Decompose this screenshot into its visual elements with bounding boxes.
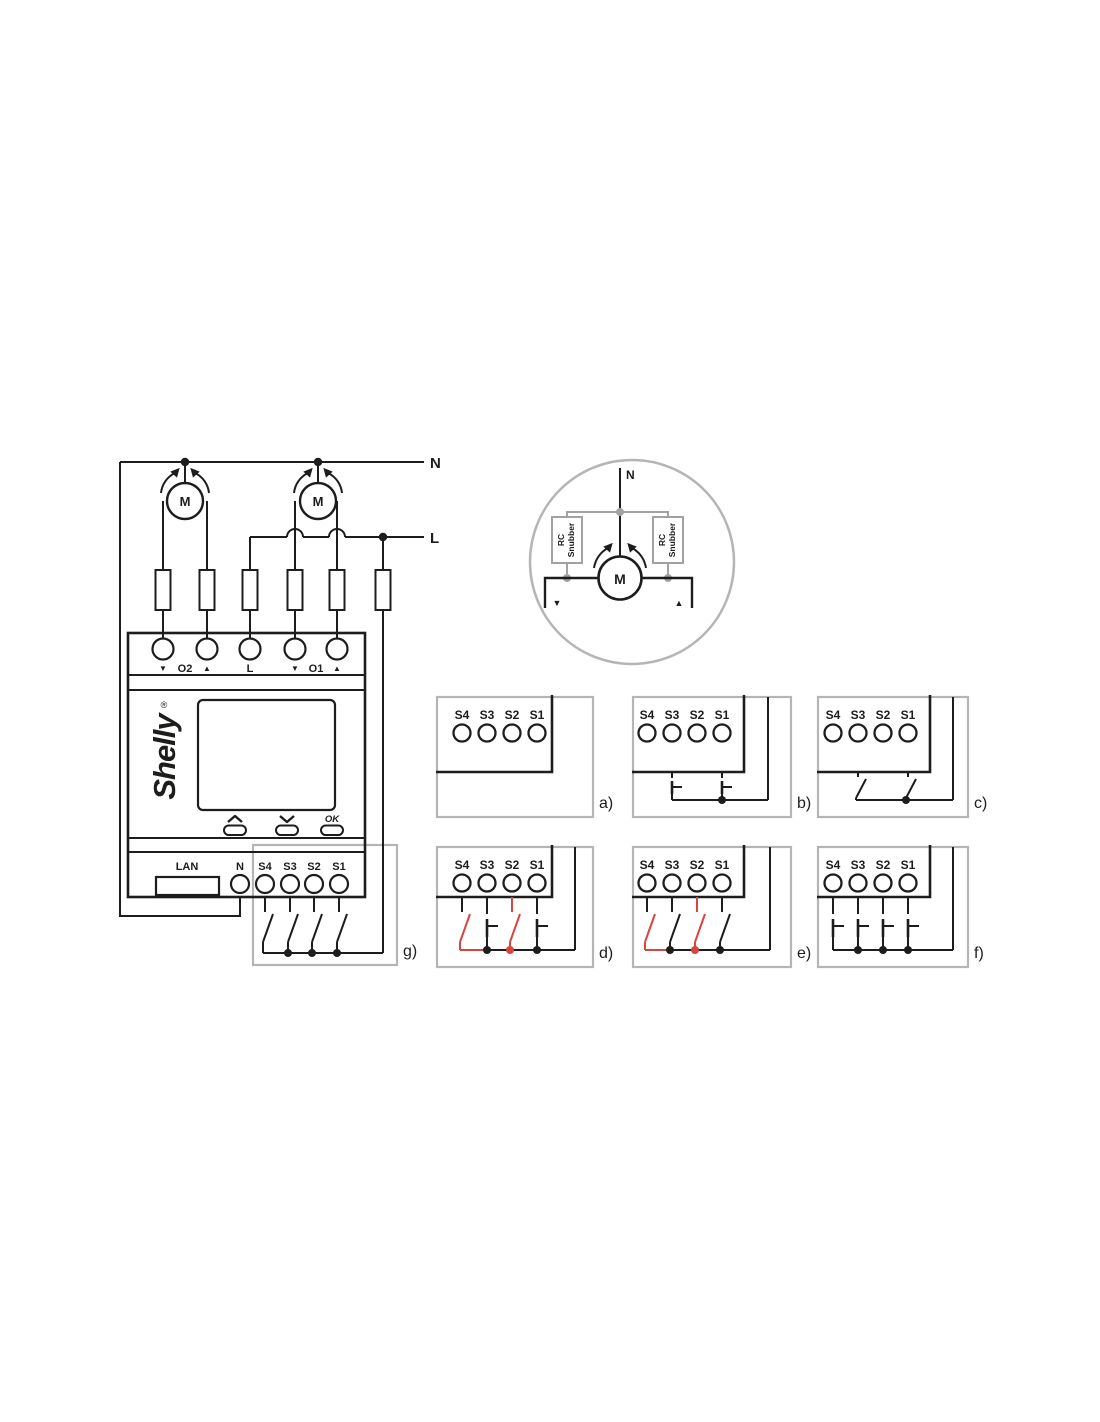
s4-terminal-label: S4: [258, 861, 272, 873]
o1-down-label: ▼: [291, 664, 299, 673]
motor-label: M: [313, 494, 324, 509]
junction-dot: [379, 533, 387, 541]
device-body: ▼ O2 ▲ L ▼ O1 ▲ Shelly ® OK LAN N S4 S3: [128, 633, 365, 897]
fuse-2: [200, 570, 215, 610]
lan-label: LAN: [176, 861, 199, 873]
s2-terminal-label: S2: [307, 861, 320, 873]
fuse-3: [243, 570, 258, 610]
output-terminal-circles: [153, 639, 348, 660]
snubber-label: Snubber: [566, 522, 576, 557]
lan-port: [156, 877, 219, 895]
terminal-n: [231, 875, 249, 893]
s3-terminal-label: S3: [283, 861, 296, 873]
detail-neutral-label: N: [626, 468, 635, 482]
o1-label: O1: [309, 663, 324, 675]
fuse-4: [288, 570, 303, 610]
o2-down-label: ▼: [159, 664, 167, 673]
terminal-s3: [281, 875, 299, 893]
motor-label: M: [614, 571, 626, 587]
neutral-label: N: [430, 455, 441, 472]
fuse-6: [376, 570, 391, 610]
terminal-o1-down: [285, 639, 306, 660]
fuse-to-terminal-wires: [163, 610, 337, 639]
n-terminal-label: N: [236, 861, 244, 873]
fuse-5: [330, 570, 345, 610]
down-button: [276, 826, 298, 836]
rc-label: RC: [556, 534, 566, 546]
terminal-o1-up: [327, 639, 348, 660]
snubber-label: Snubber: [667, 522, 677, 557]
main-schematic: N L M M: [0, 0, 1100, 1422]
terminal-o2-up: [197, 639, 218, 660]
terminal-s2: [305, 875, 323, 893]
display: [198, 700, 335, 810]
live-label: L: [430, 530, 439, 547]
o2-up-label: ▲: [203, 664, 211, 673]
input-terminal-circles: [231, 875, 348, 893]
terminal-o2-down: [153, 639, 174, 660]
l-terminal-label: L: [247, 663, 254, 675]
fuse-1: [156, 570, 171, 610]
fuses: [156, 570, 391, 610]
trademark-symbol: ®: [161, 700, 168, 710]
gray-junction-dot: [616, 508, 624, 516]
terminal-s4: [256, 875, 274, 893]
junction-dot: [314, 458, 322, 466]
nav-buttons: OK: [224, 814, 343, 835]
terminal-l: [240, 639, 261, 660]
motor-label: M: [180, 494, 191, 509]
rc-label: RC: [657, 534, 667, 546]
junction-dot: [181, 458, 189, 466]
brand-logo: Shelly: [147, 712, 182, 800]
o2-label: O2: [178, 663, 193, 675]
o1-up-label: ▲: [333, 664, 341, 673]
ok-label: OK: [325, 814, 340, 825]
chevron-down-icon: [280, 816, 294, 822]
terminal-s1: [330, 875, 348, 893]
chevron-up-icon: [228, 816, 242, 822]
up-button: [224, 826, 246, 836]
up-direction-icon: ▲: [675, 598, 684, 608]
s1-terminal-label: S1: [332, 861, 345, 873]
wiring-diagram-page: S4S3S2S1a)S4S3S2S1b)S4S3S2S1c)S4S3S2S1d)…: [0, 0, 1100, 1422]
motor-detail-diagram: N RC Snubber RC Snubber M ▼ ▲: [530, 460, 734, 664]
down-direction-icon: ▼: [553, 598, 562, 608]
ok-button: [321, 826, 343, 836]
